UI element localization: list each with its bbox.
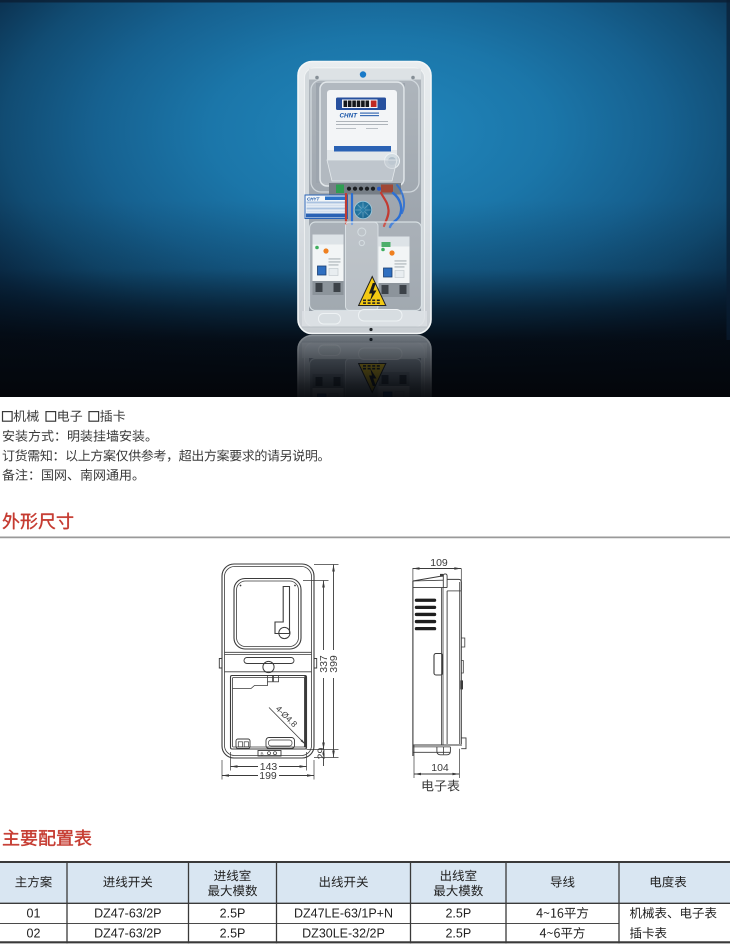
svg-text:109: 109 xyxy=(430,557,448,569)
svg-text:01: 01 xyxy=(27,907,41,921)
svg-text:DZ47LE-63/1P+N: DZ47LE-63/1P+N xyxy=(294,907,393,921)
svg-text:B: B xyxy=(260,751,263,756)
svg-text:02: 02 xyxy=(27,927,41,941)
svg-text:399: 399 xyxy=(328,655,340,673)
svg-text:199: 199 xyxy=(259,770,277,782)
svg-text:29: 29 xyxy=(315,748,327,760)
svg-text:CHYT: CHYT xyxy=(307,197,321,202)
svg-text:2.5P: 2.5P xyxy=(220,927,246,941)
svg-text:104: 104 xyxy=(431,762,449,774)
svg-text:2.5P: 2.5P xyxy=(220,907,246,921)
svg-text:DZ47-63/2P: DZ47-63/2P xyxy=(94,927,161,941)
svg-text:DZ47-63/2P: DZ47-63/2P xyxy=(94,907,161,921)
svg-text:CHNT: CHNT xyxy=(340,113,359,120)
svg-text:2.5P: 2.5P xyxy=(445,907,471,921)
svg-text:DZ30LE-32/2P: DZ30LE-32/2P xyxy=(302,927,385,941)
svg-text:2.5P: 2.5P xyxy=(445,927,471,941)
